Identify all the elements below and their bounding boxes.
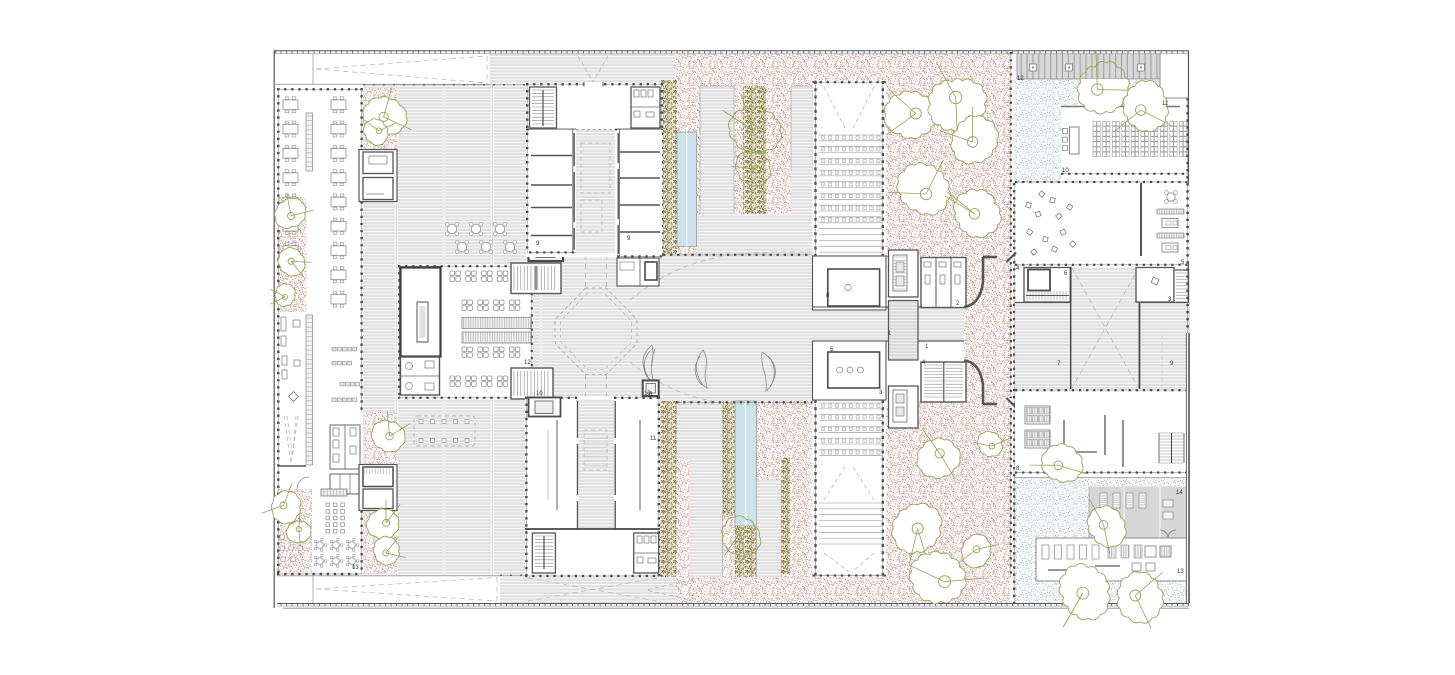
svg-text:10: 10 xyxy=(536,391,543,397)
svg-text:14: 14 xyxy=(1176,490,1183,496)
svg-text:10: 10 xyxy=(1062,168,1069,174)
svg-text:12: 12 xyxy=(524,360,531,366)
svg-text:13: 13 xyxy=(1177,569,1184,575)
svg-text:12: 12 xyxy=(1017,76,1024,82)
svg-text:11: 11 xyxy=(1162,101,1169,107)
svg-text:13: 13 xyxy=(352,565,359,571)
svg-text:11: 11 xyxy=(650,436,657,442)
